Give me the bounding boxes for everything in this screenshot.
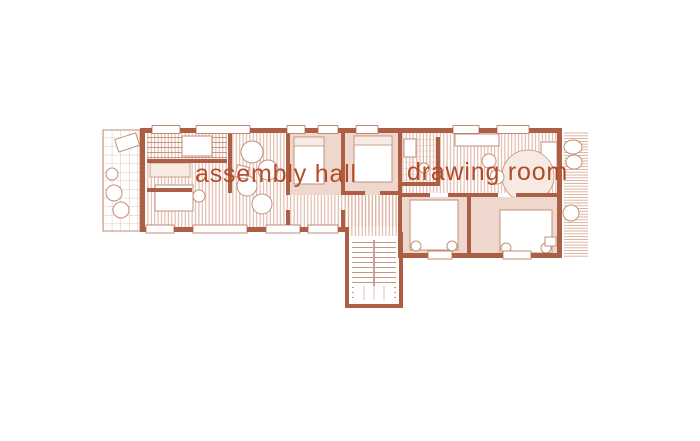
sofa (455, 134, 499, 146)
room-label-assembly-hall: assembly hall (195, 162, 357, 187)
right-bedrooms (402, 197, 557, 253)
room-label-drawing-room: drawing room (407, 160, 568, 185)
veranda (103, 130, 140, 231)
floor-plan-drawing (0, 0, 700, 441)
terrace (563, 131, 588, 257)
floor-plan-canvas: assembly hall drawing room (0, 0, 700, 441)
staircase (349, 236, 399, 304)
